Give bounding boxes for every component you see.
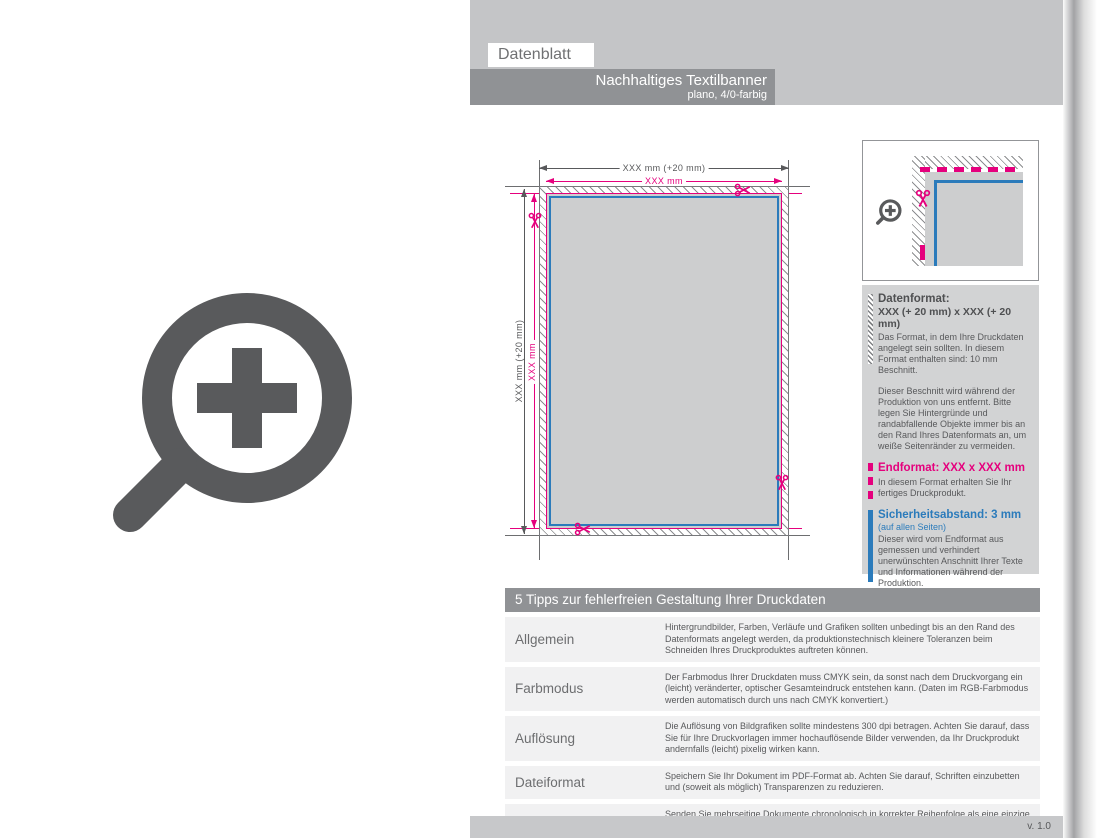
legend-sicherheitsabstand: Sicherheitsabstand: 3 mm (auf allen Seit… [878,509,1031,589]
beschnitt-text: Dieser Beschnitt wird während der Produk… [878,386,1031,452]
page-edge-shadow [1063,0,1097,838]
sicherheitsabstand-text: Dieser wird vom Endformat aus gemessen u… [878,534,1031,589]
sicherheitsabstand-subtitle: (auf allen Seiten) [878,522,1031,532]
dim-label-width-inner: XXX mm [642,176,686,186]
legend-beschnitt: Dieser Beschnitt wird während der Produk… [878,386,1031,452]
tips-header: 5 Tipps zur fehlerfreien Gestaltung Ihre… [505,588,1040,612]
zoom-plus-icon [875,199,902,226]
scissors-icon [913,189,933,209]
row-text: Die Auflösung von Bildgrafiken sollte mi… [657,716,1040,761]
banner-cut-line [546,193,782,529]
corner-detail-box [862,140,1039,281]
datenblatt-tab: Datenblatt [488,43,594,67]
table-row: Farbmodus Der Farbmodus Ihrer Druckdaten… [505,667,1040,712]
version-bar: v. 1.0 [470,816,1063,838]
datenformat-title: Datenformat: [878,293,1031,306]
dim-label-height-inner: XXX mm [527,340,537,384]
version-label: v. 1.0 [1027,821,1051,832]
zoom-plus-icon [105,290,355,543]
table-row: Auflösung Die Auflösung von Bildgrafiken… [505,716,1040,761]
sheet: Datenblatt Nachhaltiges Textilbanner pla… [470,0,1063,838]
dashed-magenta-swatch [868,463,873,501]
datenformat-value: XXX (+ 20 mm) x XXX (+ 20 mm) [878,306,1031,330]
row-text: Speichern Sie Ihr Dokument im PDF-Format… [657,766,1040,799]
title-bar: Nachhaltiges Textilbanner plano, 4/0-far… [470,69,775,105]
detail-cut-line [920,245,925,260]
hatch-swatch [868,294,873,364]
product-title: Nachhaltiges Textilbanner [470,72,767,89]
datasheet-page: Datenblatt Nachhaltiges Textilbanner pla… [0,0,1117,838]
dimension-line-height-outer [524,189,525,534]
product-subtitle: plano, 4/0-farbig [470,89,767,102]
table-row: Allgemein Hintergrundbilder, Farben, Ver… [505,617,1040,662]
row-label: Allgemein [505,617,657,662]
blue-swatch [868,510,873,582]
endformat-text: In diesem Format erhalten Sie Ihr fertig… [878,477,1031,499]
dim-label-height-outer: XXX mm (+20 mm) [514,317,524,406]
legend-endformat: Endformat: XXX x XXX mm In diesem Format… [878,462,1031,499]
detail-safety-line [934,180,1023,266]
row-label: Dateiformat [505,766,657,799]
sicherheitsabstand-title: Sicherheitsabstand: 3 mm [878,509,1031,522]
row-label: Auflösung [505,716,657,761]
scissors-icon [773,474,791,492]
legend-datenformat: Datenformat: XXX (+ 20 mm) x XXX (+ 20 m… [878,293,1031,376]
row-text: Hintergrundbilder, Farben, Verläufe und … [657,617,1040,662]
row-label: Farbmodus [505,667,657,712]
datenblatt-label: Datenblatt [498,46,571,63]
detail-cut-line [920,167,1016,172]
scissors-icon [574,520,592,538]
endformat-title: Endformat: XXX x XXX mm [878,462,1031,475]
row-text: Der Farbmodus Ihrer Druckdaten muss CMYK… [657,667,1040,712]
table-row: Dateiformat Speichern Sie Ihr Dokument i… [505,766,1040,799]
banner-bleed-area [539,186,789,536]
scissors-icon [734,181,752,199]
datenformat-text: Das Format, in dem Ihre Druckdaten angel… [878,332,1031,376]
tips-table: 5 Tipps zur fehlerfreien Gestaltung Ihre… [505,588,1040,838]
legend-panel: Datenformat: XXX (+ 20 mm) x XXX (+ 20 m… [862,285,1039,574]
scissors-icon [526,212,544,230]
dim-label-width-outer: XXX mm (+20 mm) [620,163,709,173]
banner-safety-margin [549,196,779,526]
